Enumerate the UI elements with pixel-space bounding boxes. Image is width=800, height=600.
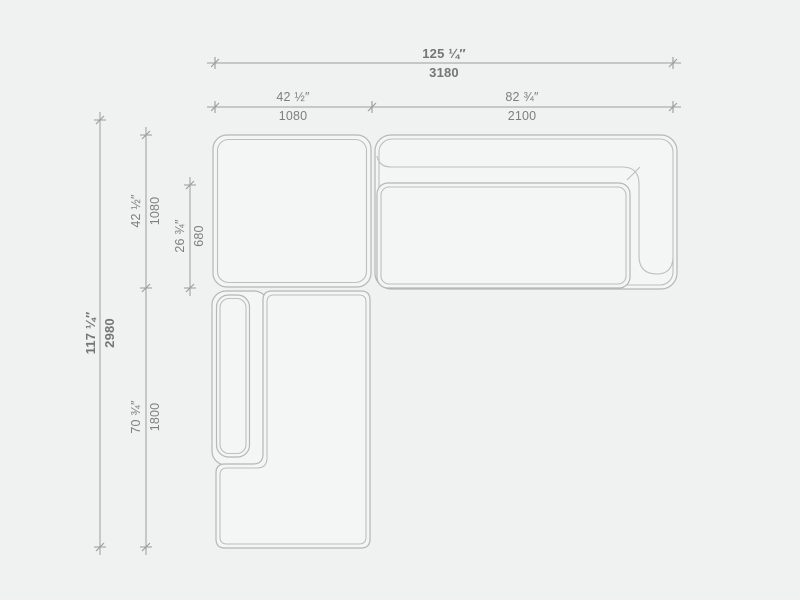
module-right-seat-cushion-outer <box>377 183 630 288</box>
dim-value-mm: 1800 <box>149 403 162 432</box>
dim-value-inches: 117 ¼″ <box>84 312 97 355</box>
module-right-sofa <box>375 135 677 289</box>
dim-label-seat-depth: 26 ¾″ 680 <box>174 219 206 252</box>
dim-value-mm: 3180 <box>429 66 459 79</box>
dim-label-chaise-module-depth: 70 ¾″ 1800 <box>130 400 162 433</box>
dim-value-inches: 125 ¼″ <box>422 47 466 60</box>
dim-label-left-module-width: 42 ½″ 1080 <box>276 91 309 123</box>
dim-value-mm: 1080 <box>149 197 162 226</box>
dim-value-inches: 26 ¾″ <box>174 219 187 252</box>
module-bottom-back-cushion-outer <box>217 295 250 457</box>
dim-value-inches: 42 ½″ <box>276 91 309 104</box>
dim-label-total-width: 125 ¼″ 3180 <box>422 47 466 79</box>
module-bottom-chaise <box>212 291 370 548</box>
dim-value-inches: 82 ¾″ <box>505 91 538 104</box>
dim-value-mm: 1080 <box>279 110 308 123</box>
module-left-square <box>213 135 371 287</box>
dim-value-inches: 42 ½″ <box>130 194 143 227</box>
dim-label-total-depth: 117 ¼″ 2980 <box>84 312 116 355</box>
dim-value-inches: 70 ¾″ <box>130 400 143 433</box>
dim-label-top-module-depth: 42 ½″ 1080 <box>130 194 162 227</box>
dim-label-right-module-width: 82 ¾″ 2100 <box>505 91 538 123</box>
sofa-plan-svg <box>0 0 800 600</box>
module-left-outer-outline <box>213 135 371 287</box>
technical-drawing-canvas: 125 ¼″ 3180 42 ½″ 1080 82 ¾″ 2100 117 ¼″… <box>0 0 800 600</box>
dim-value-mm: 680 <box>193 225 206 246</box>
dim-value-mm: 2100 <box>508 110 537 123</box>
dim-value-mm: 2980 <box>103 318 116 348</box>
